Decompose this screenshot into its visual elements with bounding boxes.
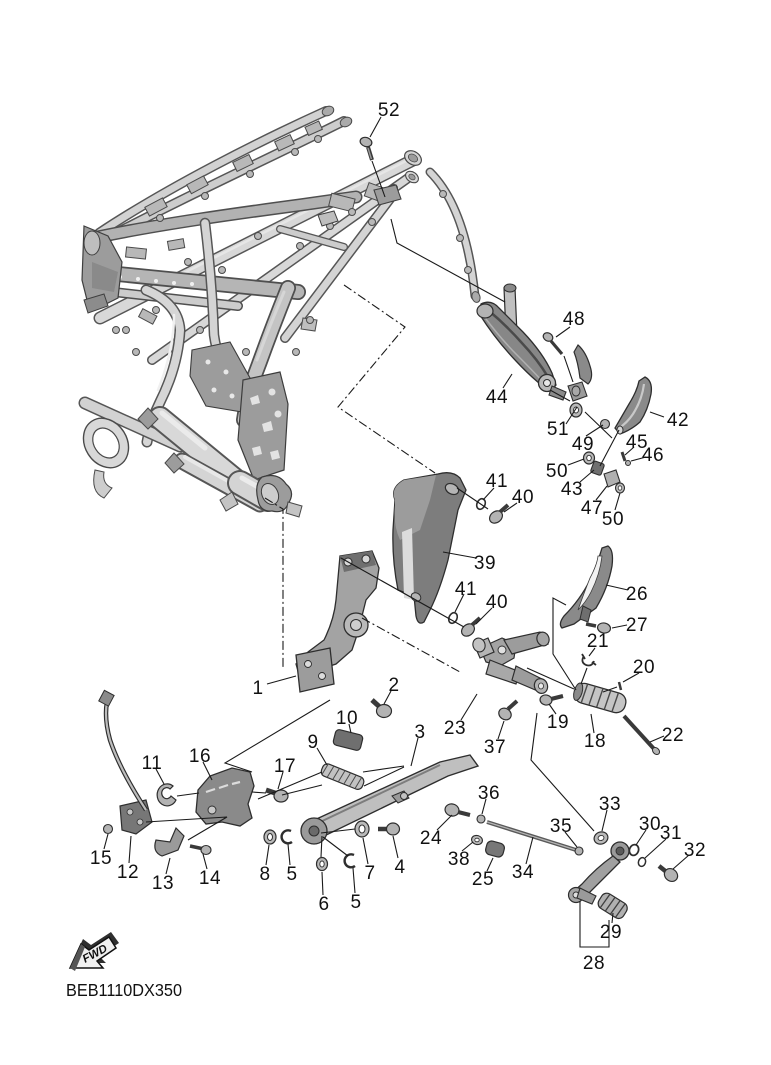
svg-text:38: 38 [448, 849, 470, 870]
svg-text:19: 19 [547, 712, 569, 733]
svg-text:15: 15 [90, 848, 112, 869]
svg-text:40: 40 [486, 592, 508, 613]
svg-text:3: 3 [414, 722, 425, 743]
svg-text:5: 5 [350, 892, 361, 913]
svg-text:44: 44 [486, 387, 508, 408]
svg-text:16: 16 [189, 746, 211, 767]
svg-text:20: 20 [633, 657, 655, 678]
svg-text:13: 13 [152, 873, 174, 894]
svg-text:9: 9 [307, 732, 318, 753]
svg-text:18: 18 [584, 731, 606, 752]
svg-text:29: 29 [600, 922, 622, 943]
svg-text:21: 21 [587, 631, 609, 652]
svg-text:50: 50 [602, 509, 624, 530]
svg-text:41: 41 [455, 579, 477, 600]
svg-text:11: 11 [142, 753, 163, 774]
svg-text:35: 35 [550, 816, 572, 837]
svg-text:26: 26 [626, 584, 648, 605]
svg-text:46: 46 [642, 445, 664, 466]
svg-text:22: 22 [662, 725, 684, 746]
svg-text:5: 5 [286, 864, 297, 885]
svg-text:39: 39 [474, 553, 496, 574]
svg-text:48: 48 [563, 309, 585, 330]
svg-text:37: 37 [484, 737, 506, 758]
svg-text:7: 7 [364, 863, 375, 884]
svg-text:40: 40 [512, 487, 534, 508]
svg-text:17: 17 [274, 756, 296, 777]
svg-text:12: 12 [117, 862, 139, 883]
svg-text:47: 47 [581, 498, 603, 519]
svg-text:32: 32 [684, 840, 706, 861]
svg-text:43: 43 [561, 479, 583, 500]
svg-text:4: 4 [394, 857, 405, 878]
svg-text:25: 25 [472, 869, 494, 890]
svg-text:2: 2 [388, 675, 399, 696]
svg-text:14: 14 [199, 868, 221, 889]
svg-text:8: 8 [259, 864, 270, 885]
svg-text:33: 33 [599, 794, 621, 815]
svg-text:27: 27 [626, 615, 648, 636]
svg-text:6: 6 [318, 894, 329, 915]
svg-text:24: 24 [420, 828, 442, 849]
svg-text:41: 41 [486, 471, 508, 492]
svg-text:49: 49 [572, 434, 594, 455]
svg-text:BEB1110DX350: BEB1110DX350 [66, 980, 182, 1000]
svg-text:51: 51 [547, 419, 569, 440]
svg-text:23: 23 [444, 718, 466, 739]
svg-text:42: 42 [667, 410, 689, 431]
svg-text:36: 36 [478, 783, 500, 804]
svg-text:34: 34 [512, 862, 534, 883]
svg-text:1: 1 [252, 678, 263, 699]
svg-text:10: 10 [336, 708, 358, 729]
svg-text:28: 28 [583, 953, 605, 974]
svg-text:52: 52 [378, 100, 400, 121]
svg-text:31: 31 [660, 823, 682, 844]
svg-text:30: 30 [639, 814, 661, 835]
